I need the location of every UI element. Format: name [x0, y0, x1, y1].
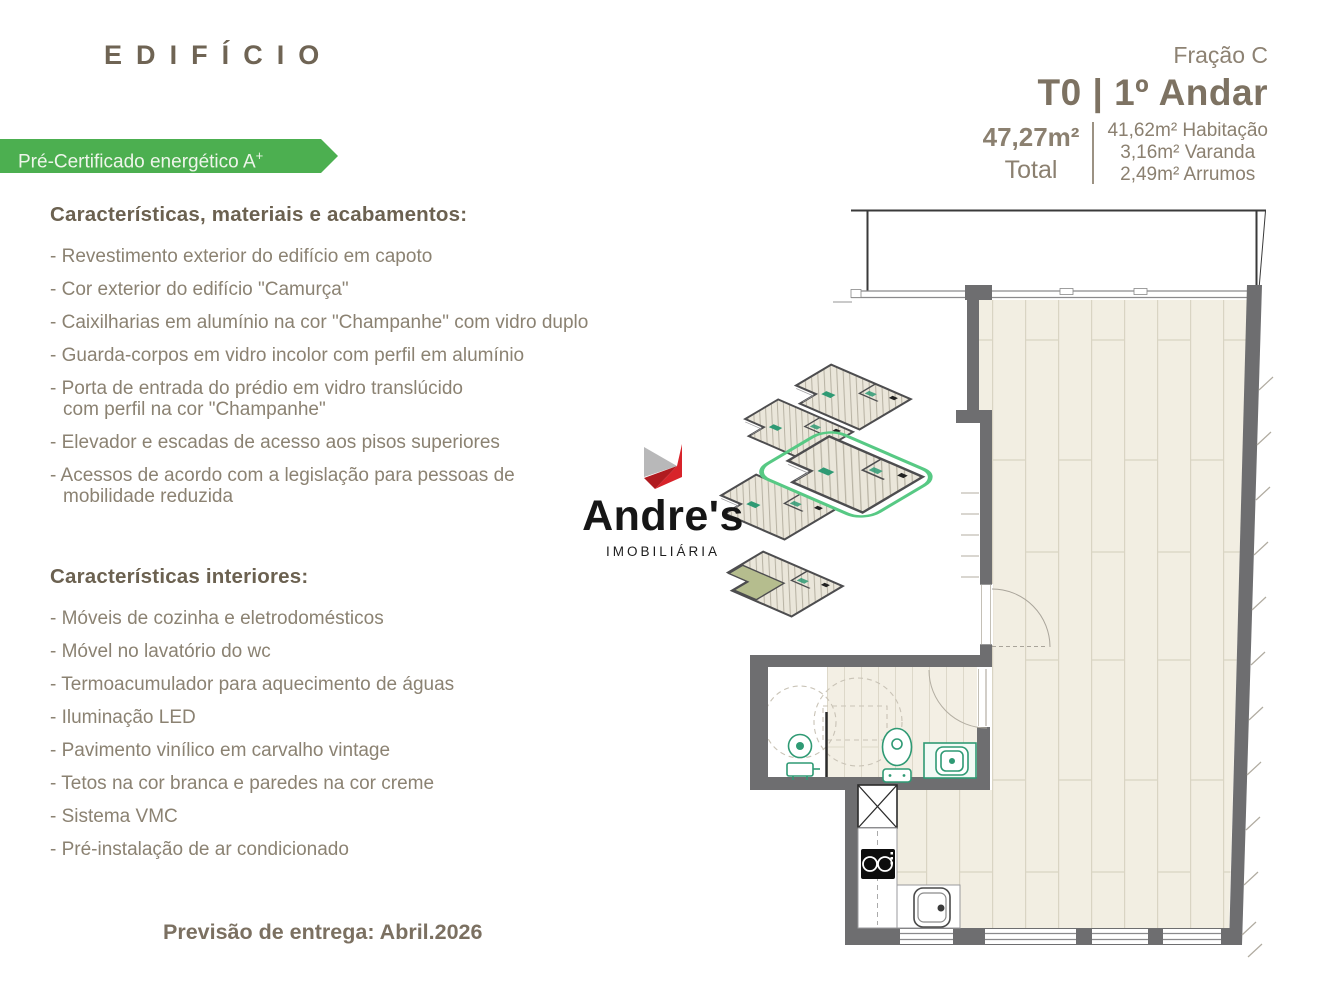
total-area-label: Total [983, 156, 1080, 185]
brochure-page: EDIFÍCIO Pré-Certificado energético A+ F… [0, 0, 1333, 1000]
total-area-value: 47,27m² [983, 122, 1080, 153]
exterior-hatch-left [961, 493, 979, 577]
list-item: - Porta de entrada do prédio em vidro tr… [50, 378, 660, 420]
agency-logo: Andre's IMOBILIÁRIA [563, 443, 763, 559]
list-item: - Caixilharias em alumínio na cor "Champ… [50, 312, 660, 333]
living-room-floor [979, 300, 1247, 930]
list-item: - Termoacumulador para aquecimento de ág… [50, 674, 660, 695]
toilet-icon [883, 729, 912, 783]
list-item: - Pré-instalação de ar condicionado [50, 839, 660, 860]
list-item: - Móvel no lavatório do wc [50, 641, 660, 662]
fraction-label: Fração C [983, 42, 1268, 69]
list-item: - Móveis de cozinha e eletrodomésticos [50, 608, 660, 629]
list-item: - Cor exterior do edifício "Camurça" [50, 279, 660, 300]
total-area: 47,27m² Total [983, 122, 1080, 185]
section-heading: Características interiores: [50, 565, 660, 588]
area-line: 3,16m² Varanda [1107, 142, 1268, 164]
list-item: - Pavimento vinílico em carvalho vintage [50, 740, 660, 761]
list-item: - Sistema VMC [50, 806, 660, 827]
energy-badge-label: Pré-Certificado energético A [18, 151, 256, 172]
unit-type-title: T0 | 1º Andar [983, 72, 1268, 114]
agency-subtitle: IMOBILIÁRIA [563, 544, 763, 559]
section-interior-features: Características interiores: - Móveis de … [50, 565, 660, 872]
delivery-date: Previsão de entrega: Abril.2026 [163, 920, 482, 945]
list-item: - Iluminação LED [50, 707, 660, 728]
bathroom-sink-icon [924, 743, 976, 778]
agency-name: Andre's [563, 492, 763, 541]
feature-list: - Móveis de cozinha e eletrodomésticos -… [50, 608, 660, 860]
area-line: 2,49m² Arrumos [1107, 164, 1268, 186]
section-heading: Características, materiais e acabamentos… [50, 203, 660, 226]
area-divider [1092, 122, 1094, 184]
area-summary: 47,27m² Total 41,62m² Habitação 3,16m² V… [983, 120, 1268, 186]
shower-floor [768, 667, 827, 777]
cooktop-icon [861, 849, 895, 879]
agency-logo-icon [642, 443, 684, 491]
area-breakdown: 41,62m² Habitação 3,16m² Varanda 2,49m² … [1107, 120, 1268, 186]
bottom-windows [900, 929, 1221, 944]
unit-header: Fração C T0 | 1º Andar 47,27m² Total 41,… [983, 42, 1268, 186]
kitchen-shaft [858, 785, 897, 828]
area-line: 41,62m² Habitação [1107, 120, 1268, 142]
balcony-outline [851, 211, 1266, 296]
energy-badge-rating-sup: + [256, 148, 264, 163]
building-title: EDIFÍCIO [104, 40, 333, 71]
kitchen-sink-icon [914, 888, 950, 927]
list-item: - Revestimento exterior do edifício em c… [50, 246, 660, 267]
list-item: - Guarda-corpos em vidro incolor com per… [50, 345, 660, 366]
list-item: - Tetos na cor branca e paredes na cor c… [50, 773, 660, 794]
energy-certificate-badge: Pré-Certificado energético A+ [0, 139, 338, 173]
